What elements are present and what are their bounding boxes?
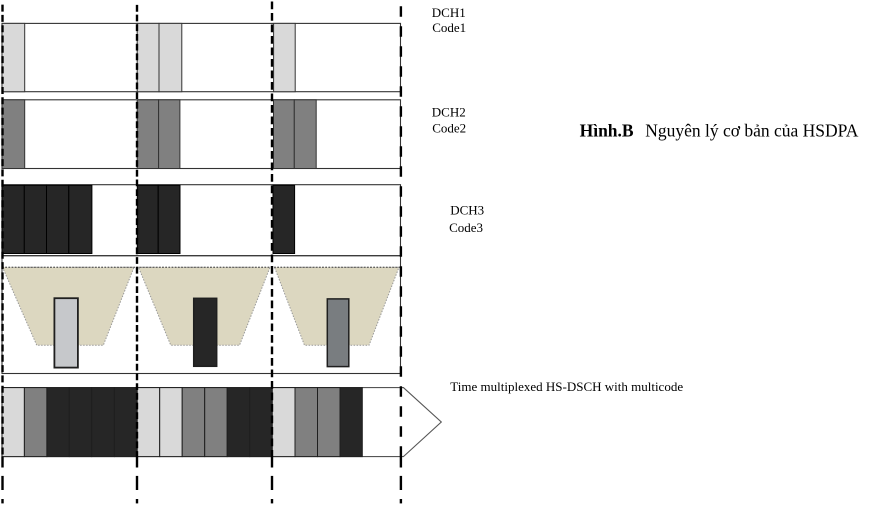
svg-text:Code3: Code3 <box>449 220 483 235</box>
svg-text:DCH3: DCH3 <box>450 203 484 218</box>
svg-text:Hình.B: Hình.B <box>580 121 634 141</box>
svg-text:Code2: Code2 <box>432 120 466 135</box>
svg-text:Code1: Code1 <box>432 20 466 35</box>
svg-text:Time multiplexed HS-DSCH with: Time multiplexed HS-DSCH with multicode <box>450 379 683 394</box>
svg-text:DCH2: DCH2 <box>432 104 466 119</box>
svg-text:Nguyên lý cơ bản của HSDPA: Nguyên lý cơ bản của HSDPA <box>645 121 859 141</box>
svg-text:DCH1: DCH1 <box>432 5 466 20</box>
